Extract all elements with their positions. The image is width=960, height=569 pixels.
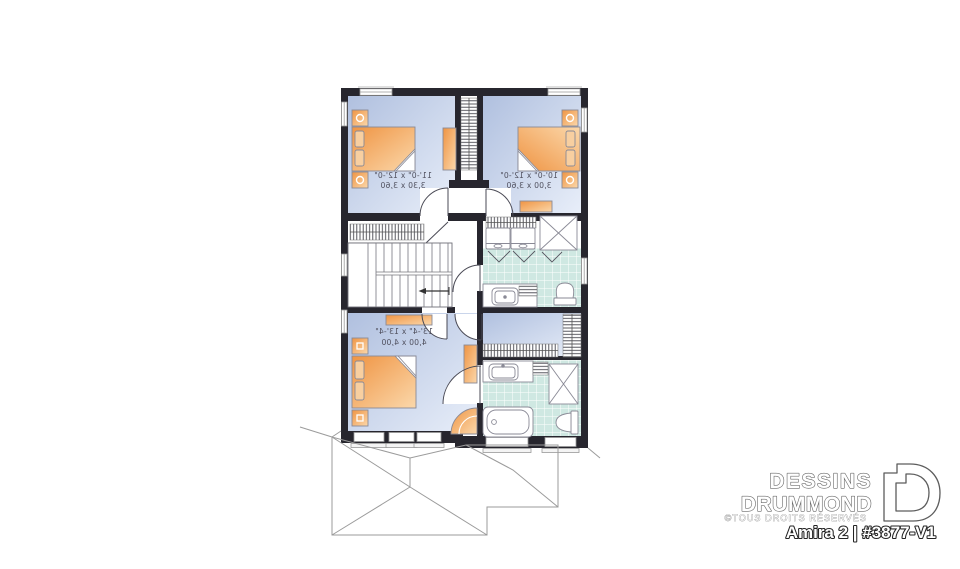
linen-shelf <box>533 362 548 375</box>
door-swing <box>453 265 480 292</box>
window <box>351 433 387 448</box>
room-dims-imperial: 11'-0" x 12'-0" <box>374 171 432 180</box>
room-dims-imperial: 13'-4" x 13'-4" <box>375 327 433 336</box>
plan-title: Amira 2 | #3877-V1 <box>786 523 936 542</box>
room-dims-imperial: 10'-0" x 12'-0" <box>500 171 558 180</box>
bed-icon <box>352 356 416 408</box>
window <box>582 108 588 132</box>
copyright-text: ©TOUS DROITS RÉSERVÉS <box>725 513 867 523</box>
window <box>342 102 348 126</box>
toilet-icon <box>554 283 576 305</box>
drummond-d-logo-icon <box>884 464 940 521</box>
dresser-icon <box>386 315 432 325</box>
closet-rod <box>563 314 581 357</box>
nightstand-lamp-icon <box>352 110 368 126</box>
nightstand-lamp-icon <box>352 338 368 354</box>
closet-rod <box>461 98 477 170</box>
bed-icon <box>518 127 580 171</box>
closet-rod <box>483 344 558 357</box>
nightstand-lamp-icon <box>562 110 578 126</box>
dresser-icon <box>464 345 477 383</box>
window <box>582 258 588 284</box>
washer-icon <box>486 228 510 249</box>
shower-icon <box>549 364 578 404</box>
bathtub-icon <box>483 407 533 437</box>
brand-name-line1: DESSINS <box>769 470 872 493</box>
linen-shelf <box>519 286 537 296</box>
room-dims-metric: 3,30 x 3,60 <box>380 181 425 190</box>
floorplan-page: 11'-0" x 12'-0" 3,30 x 3,60 10'-0" x 12'… <box>0 0 960 569</box>
closet-door-panel <box>426 222 448 243</box>
staircase <box>348 243 452 307</box>
closet-rod <box>350 224 424 240</box>
dryer-icon <box>511 228 535 249</box>
window <box>342 310 348 333</box>
bed-icon <box>352 127 415 171</box>
vanity-sink-icon <box>483 361 533 382</box>
nightstand-lamp-icon <box>562 172 578 188</box>
brand-logo: DESSINS DRUMMOND ©TOUS DROITS RÉSERVÉS A… <box>725 464 940 542</box>
window <box>386 433 417 448</box>
floor-plan-drawing: 11'-0" x 12'-0" 3,30 x 3,60 10'-0" x 12'… <box>0 0 960 569</box>
room-dims-metric: 3,00 x 3,60 <box>506 181 551 190</box>
room-dims-metric: 4,00 x 4,00 <box>381 338 426 347</box>
linen-shelf <box>486 217 536 228</box>
nightstand-lamp-icon <box>352 172 368 188</box>
window <box>342 254 348 276</box>
nightstand-lamp-icon <box>352 410 368 426</box>
dresser-icon <box>443 128 456 170</box>
dresser-icon <box>520 201 552 212</box>
window <box>414 433 444 448</box>
shower-icon <box>540 216 577 250</box>
